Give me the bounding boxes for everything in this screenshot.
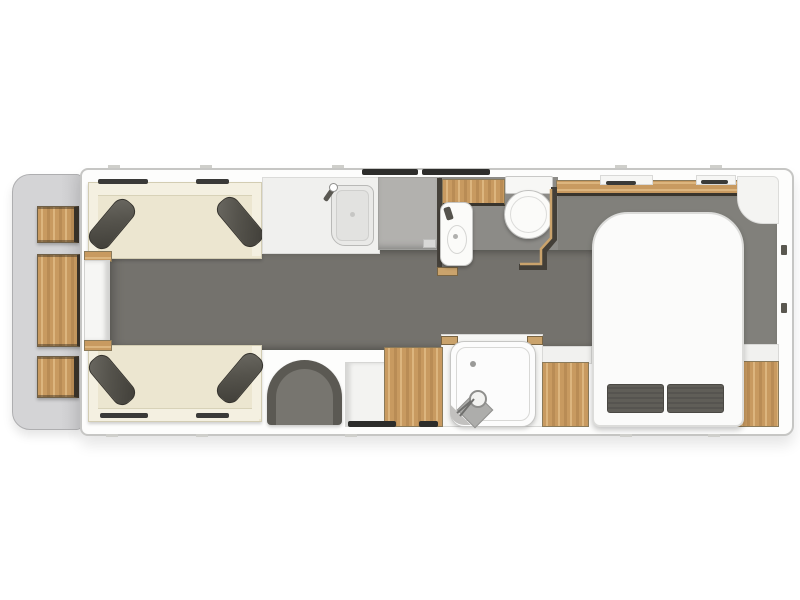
lounge-chair (267, 360, 342, 425)
entrance-door-window (419, 421, 438, 427)
rear-wall-mark (781, 303, 787, 313)
front-chest (84, 260, 110, 342)
basin-tap-icon (443, 206, 454, 221)
toilet (504, 190, 553, 239)
front-window-offside-2 (196, 179, 229, 184)
dimension-tick (108, 165, 120, 168)
kitchen-base-unit (384, 347, 443, 427)
front-shelf-top (37, 206, 79, 243)
shower-head-icon (469, 390, 487, 408)
rooflight-icon (422, 169, 490, 175)
front-window-nearside-2 (196, 413, 229, 418)
cabinet-white (345, 362, 387, 427)
front-window-nearside (100, 413, 148, 418)
front-shelf-bottom (37, 356, 79, 398)
lounge-chair-seat (276, 369, 333, 425)
pillow-left (607, 384, 664, 413)
front-window-offside (98, 179, 148, 184)
dimension-tick (615, 165, 627, 168)
pillow-right (667, 384, 724, 413)
dimension-tick (620, 434, 632, 437)
washbasin (440, 202, 473, 266)
wardrobe-left (542, 362, 589, 427)
dimension-tick (106, 434, 118, 437)
front-shelf-middle (37, 254, 82, 347)
sofa-backrest (89, 183, 259, 196)
entrance-door (348, 421, 396, 427)
rear-wall-mark (781, 245, 787, 255)
dimension-tick (710, 165, 722, 168)
chest-trim-bottom (84, 340, 112, 351)
window-slit-icon (606, 181, 636, 185)
toilet-seat (510, 196, 547, 233)
worktop-detail (423, 239, 436, 248)
shower-drain (470, 361, 476, 367)
basin-bowl (447, 225, 467, 254)
rooflight-icon (362, 169, 418, 175)
dimension-tick (200, 165, 212, 168)
dimension-tick (345, 434, 357, 437)
basin-drain (453, 234, 458, 239)
kitchen-tap-base (329, 183, 338, 192)
dimension-tick (196, 434, 208, 437)
window-slit-icon (701, 180, 728, 184)
sink-drain (350, 212, 355, 217)
dimension-tick (708, 434, 720, 437)
caravan-floorplan (0, 0, 800, 600)
dimension-tick (332, 165, 344, 168)
washroom-wall-cap (437, 267, 458, 276)
